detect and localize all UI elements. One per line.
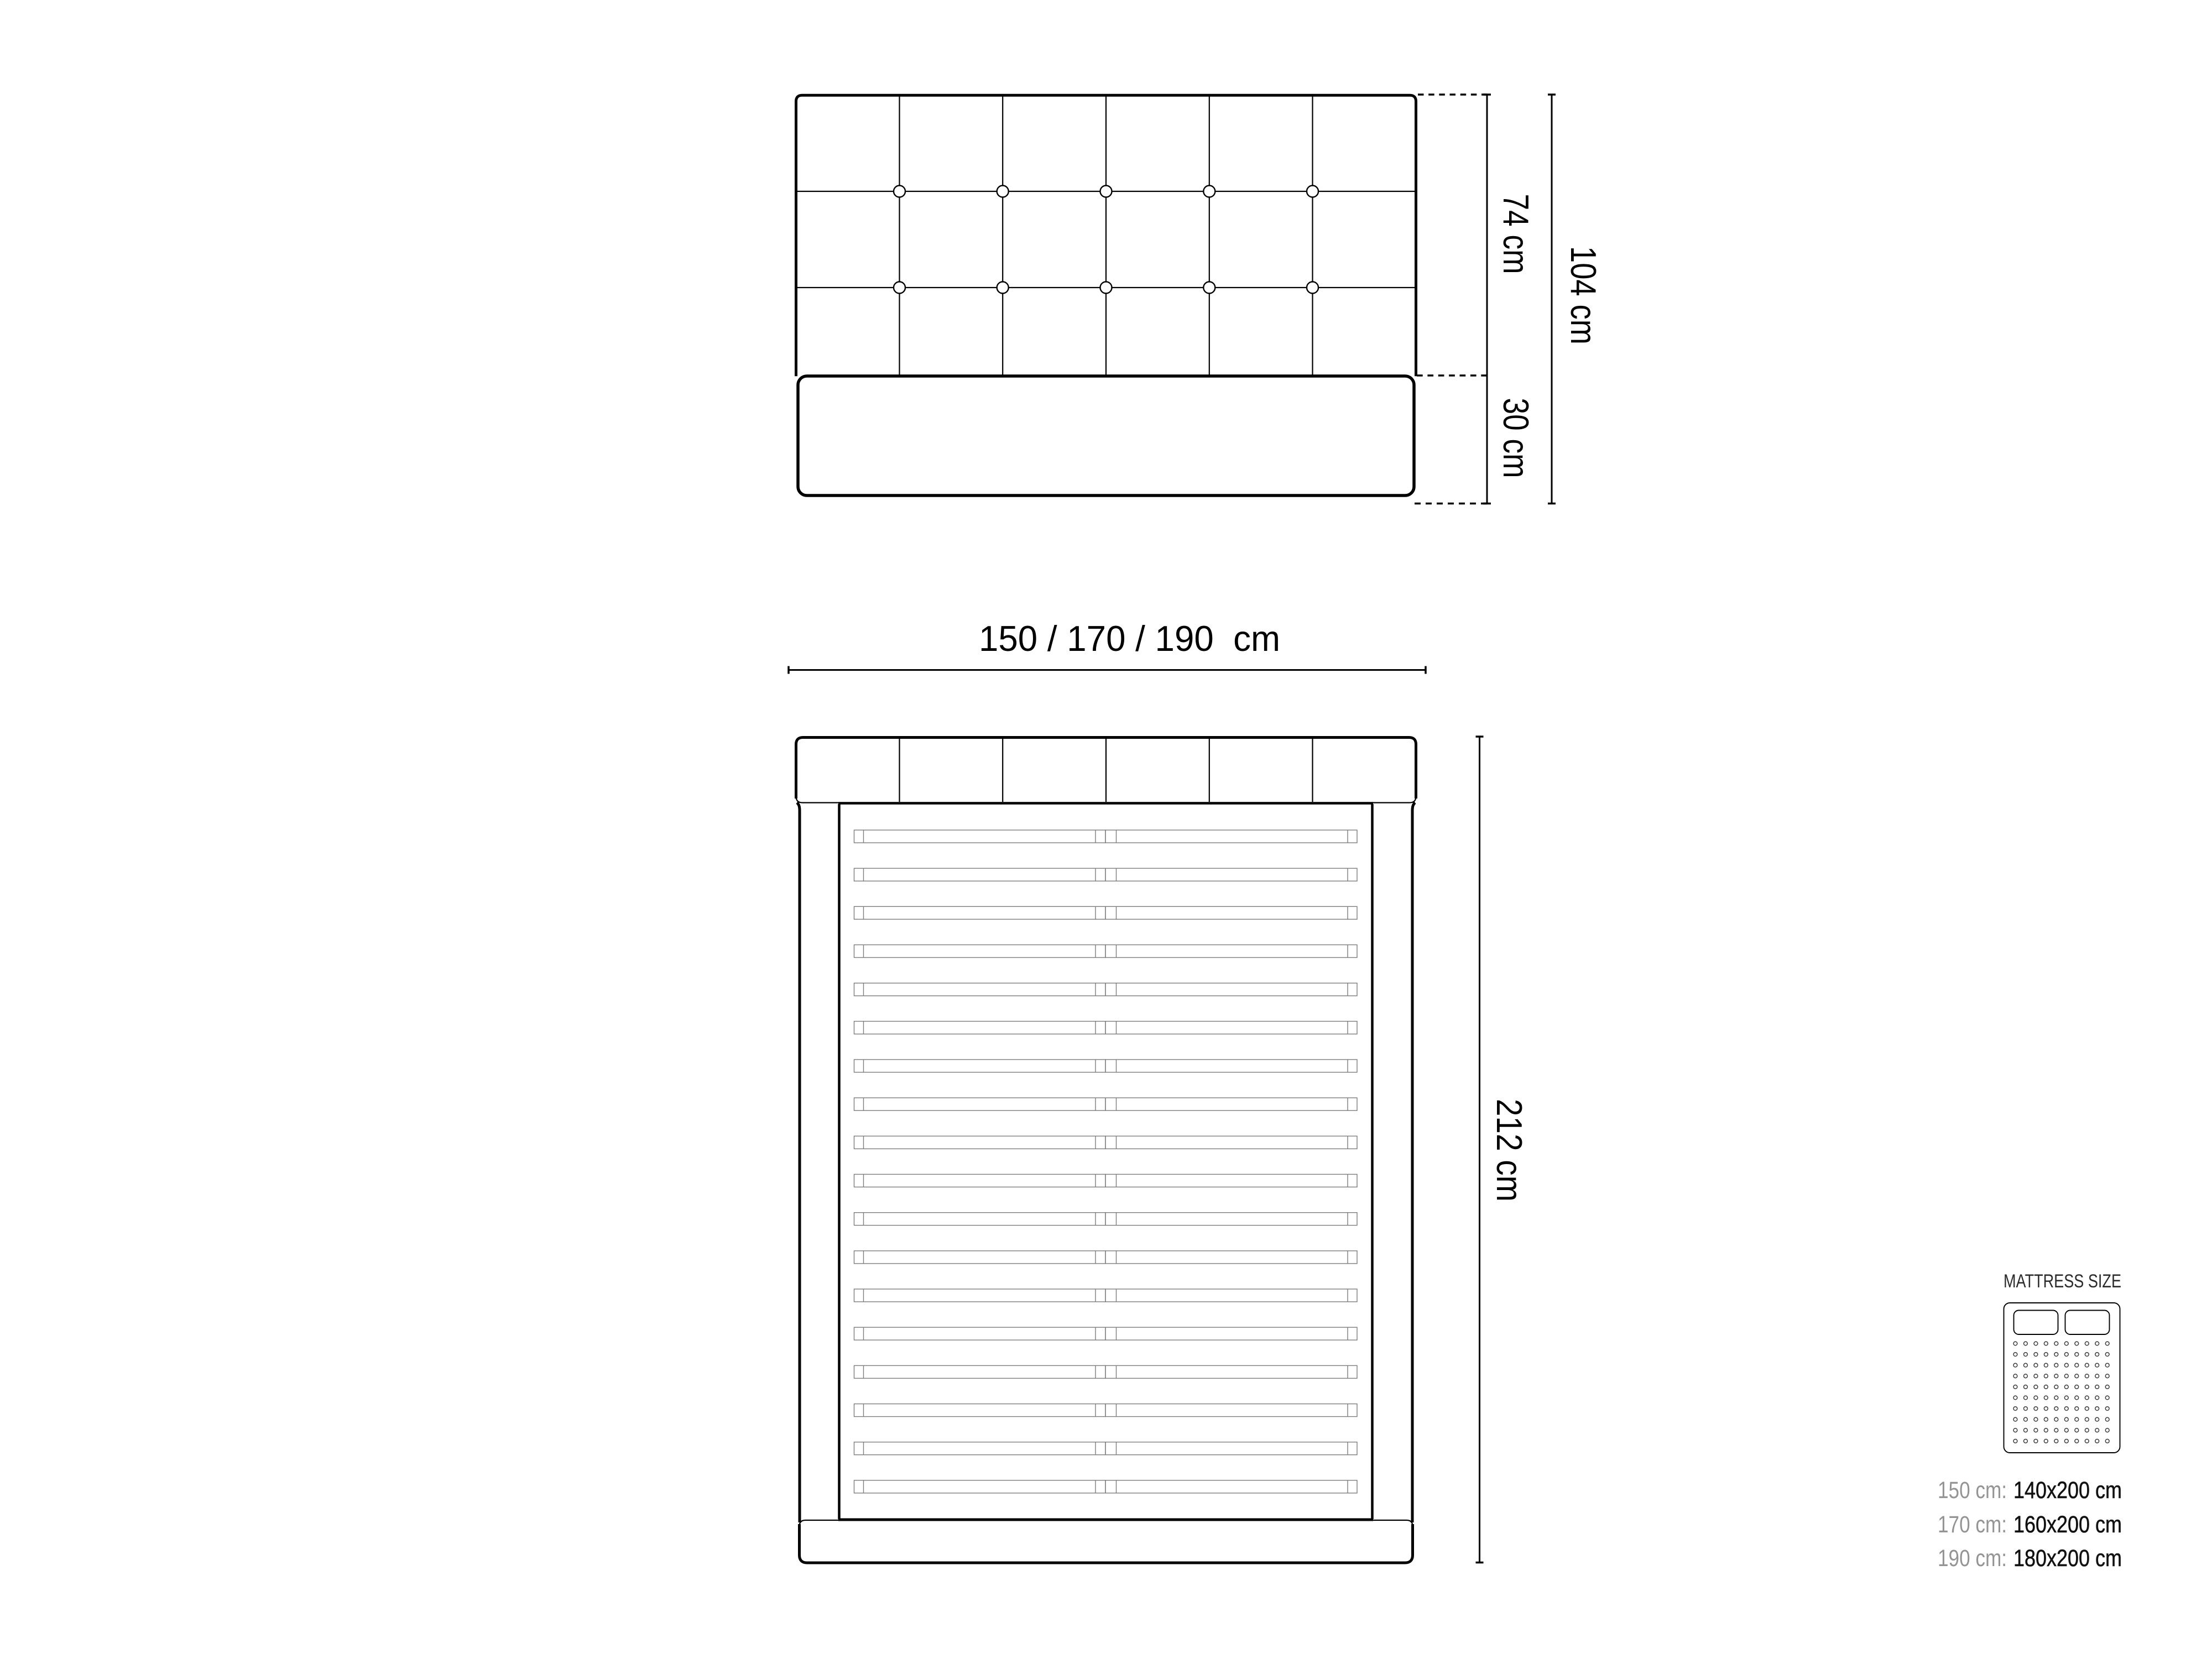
svg-text:150 cm:: 150 cm: xyxy=(1938,1477,2007,1504)
svg-text:140x200 cm: 140x200 cm xyxy=(2013,1477,2122,1504)
svg-text:170 cm:: 170 cm: xyxy=(1938,1511,2007,1538)
svg-text:30 cm: 30 cm xyxy=(1496,398,1536,478)
svg-text:180x200 cm: 180x200 cm xyxy=(2013,1545,2122,1572)
svg-text:212 cm: 212 cm xyxy=(1489,1099,1530,1202)
svg-text:74 cm: 74 cm xyxy=(1496,194,1536,274)
svg-text:160x200 cm: 160x200 cm xyxy=(2013,1511,2122,1538)
svg-text:MATTRESS SIZE: MATTRESS SIZE xyxy=(2004,1271,2121,1292)
svg-text:150 / 170 / 190 cm: 150 / 170 / 190 cm xyxy=(979,618,1280,659)
svg-text:190 cm:: 190 cm: xyxy=(1938,1545,2007,1572)
svg-text:104 cm: 104 cm xyxy=(1563,246,1604,345)
